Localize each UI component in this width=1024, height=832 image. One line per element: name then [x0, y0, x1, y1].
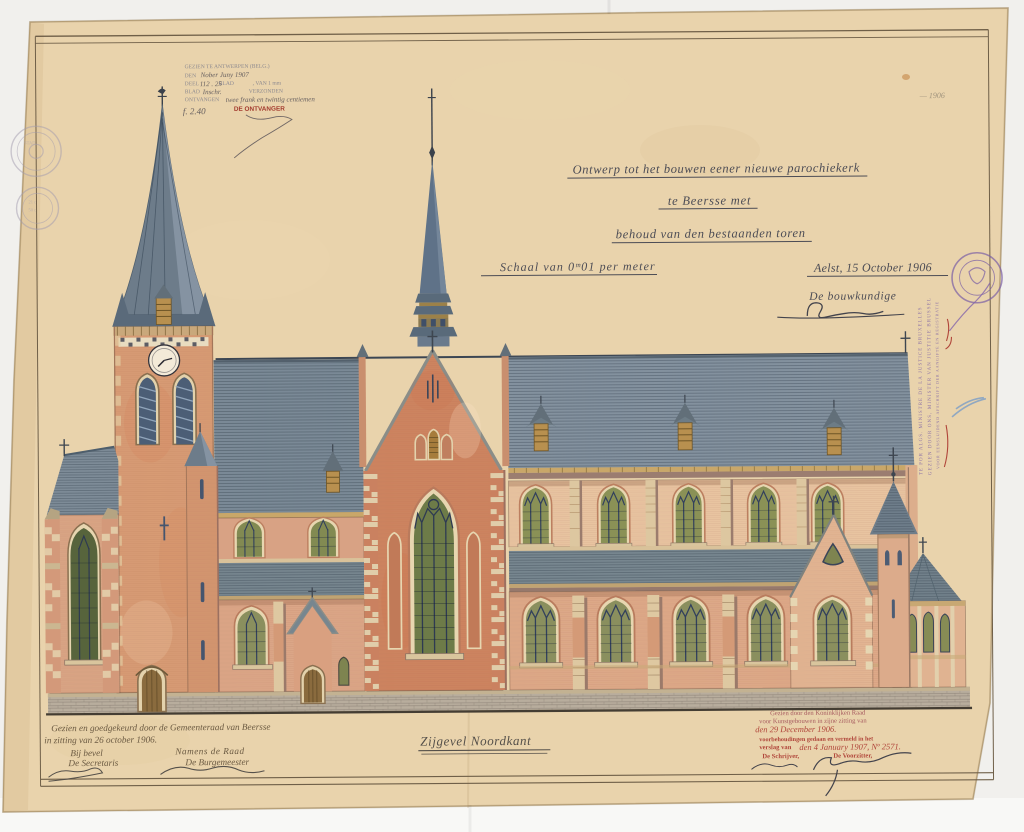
- svg-text:GEZIEN TE ANTWERPEN (BELG.): GEZIEN TE ANTWERPEN (BELG.): [185, 63, 270, 71]
- svg-text:, VAN 1 mm: , VAN 1 mm: [253, 81, 282, 87]
- svg-text:Namens de Raad: Namens de Raad: [174, 746, 244, 756]
- svg-text:21 c: 21 c: [28, 199, 36, 204]
- svg-text:De Schrijver,: De Schrijver,: [762, 753, 799, 760]
- svg-text:Ontwerp tot het bouwen eener n: Ontwerp tot het bouwen eener nieuwe paro…: [573, 161, 860, 177]
- svg-text:Schaal van 0ᵐ01 per meter: Schaal van 0ᵐ01 per meter: [500, 259, 656, 274]
- svg-text:den 29 December 1906.: den 29 December 1906.: [755, 724, 836, 735]
- svg-text:De bouwkundige: De bouwkundige: [808, 290, 897, 303]
- svg-text:f. 2.40: f. 2.40: [183, 106, 206, 116]
- svg-text:Gezien en goedgekeurd door de: Gezien en goedgekeurd door de Gemeentera…: [51, 722, 270, 734]
- svg-text:DEN: DEN: [185, 73, 197, 79]
- svg-text:verslag van: verslag van: [759, 744, 791, 751]
- svg-text:STAD: STAD: [24, 140, 36, 145]
- svg-text:Bij bevel: Bij bevel: [70, 748, 103, 758]
- svg-text:ONTVANGEN: ONTVANGEN: [185, 97, 219, 103]
- svg-text:BLAD: BLAD: [185, 89, 200, 95]
- svg-text:Aelst, 15 October 1906: Aelst, 15 October 1906: [813, 260, 932, 275]
- svg-text:— 1906: — 1906: [919, 91, 945, 100]
- svg-text:te Beersse met: te Beersse met: [668, 193, 752, 208]
- svg-text:Gezien door den Koninklijken R: Gezien door den Koninklijken Raad: [770, 710, 866, 718]
- svg-text:50 c: 50 c: [29, 207, 37, 212]
- svg-text:112 . 25: 112 . 25: [200, 80, 223, 88]
- svg-text:De Burgemeester: De Burgemeester: [184, 757, 249, 767]
- svg-text:Inschr.: Inschr.: [202, 88, 222, 96]
- svg-text:in zitting van 26 october 1906: in zitting van 26 october 1906.: [44, 734, 157, 745]
- svg-text:DE ONTVANGER: DE ONTVANGER: [234, 106, 285, 113]
- svg-text:De Voorzitter,: De Voorzitter,: [833, 752, 872, 759]
- svg-text:twee frank en twintig centieme: twee frank en twintig centiemen: [226, 95, 316, 104]
- svg-text:DEEL: DEEL: [185, 81, 200, 87]
- svg-text:VERZONDEN: VERZONDEN: [249, 89, 283, 95]
- svg-text:Zijgevel Noordkant: Zijgevel Noordkant: [420, 733, 531, 749]
- svg-text:Nober Juny 1907: Nober Juny 1907: [200, 71, 250, 79]
- svg-text:den 4 January 1907, Nº 2571.: den 4 January 1907, Nº 2571.: [799, 741, 901, 752]
- svg-text:behoud van den bestaanden tore: behoud van den bestaanden toren: [616, 226, 806, 241]
- svg-text:De Secretaris: De Secretaris: [67, 758, 118, 768]
